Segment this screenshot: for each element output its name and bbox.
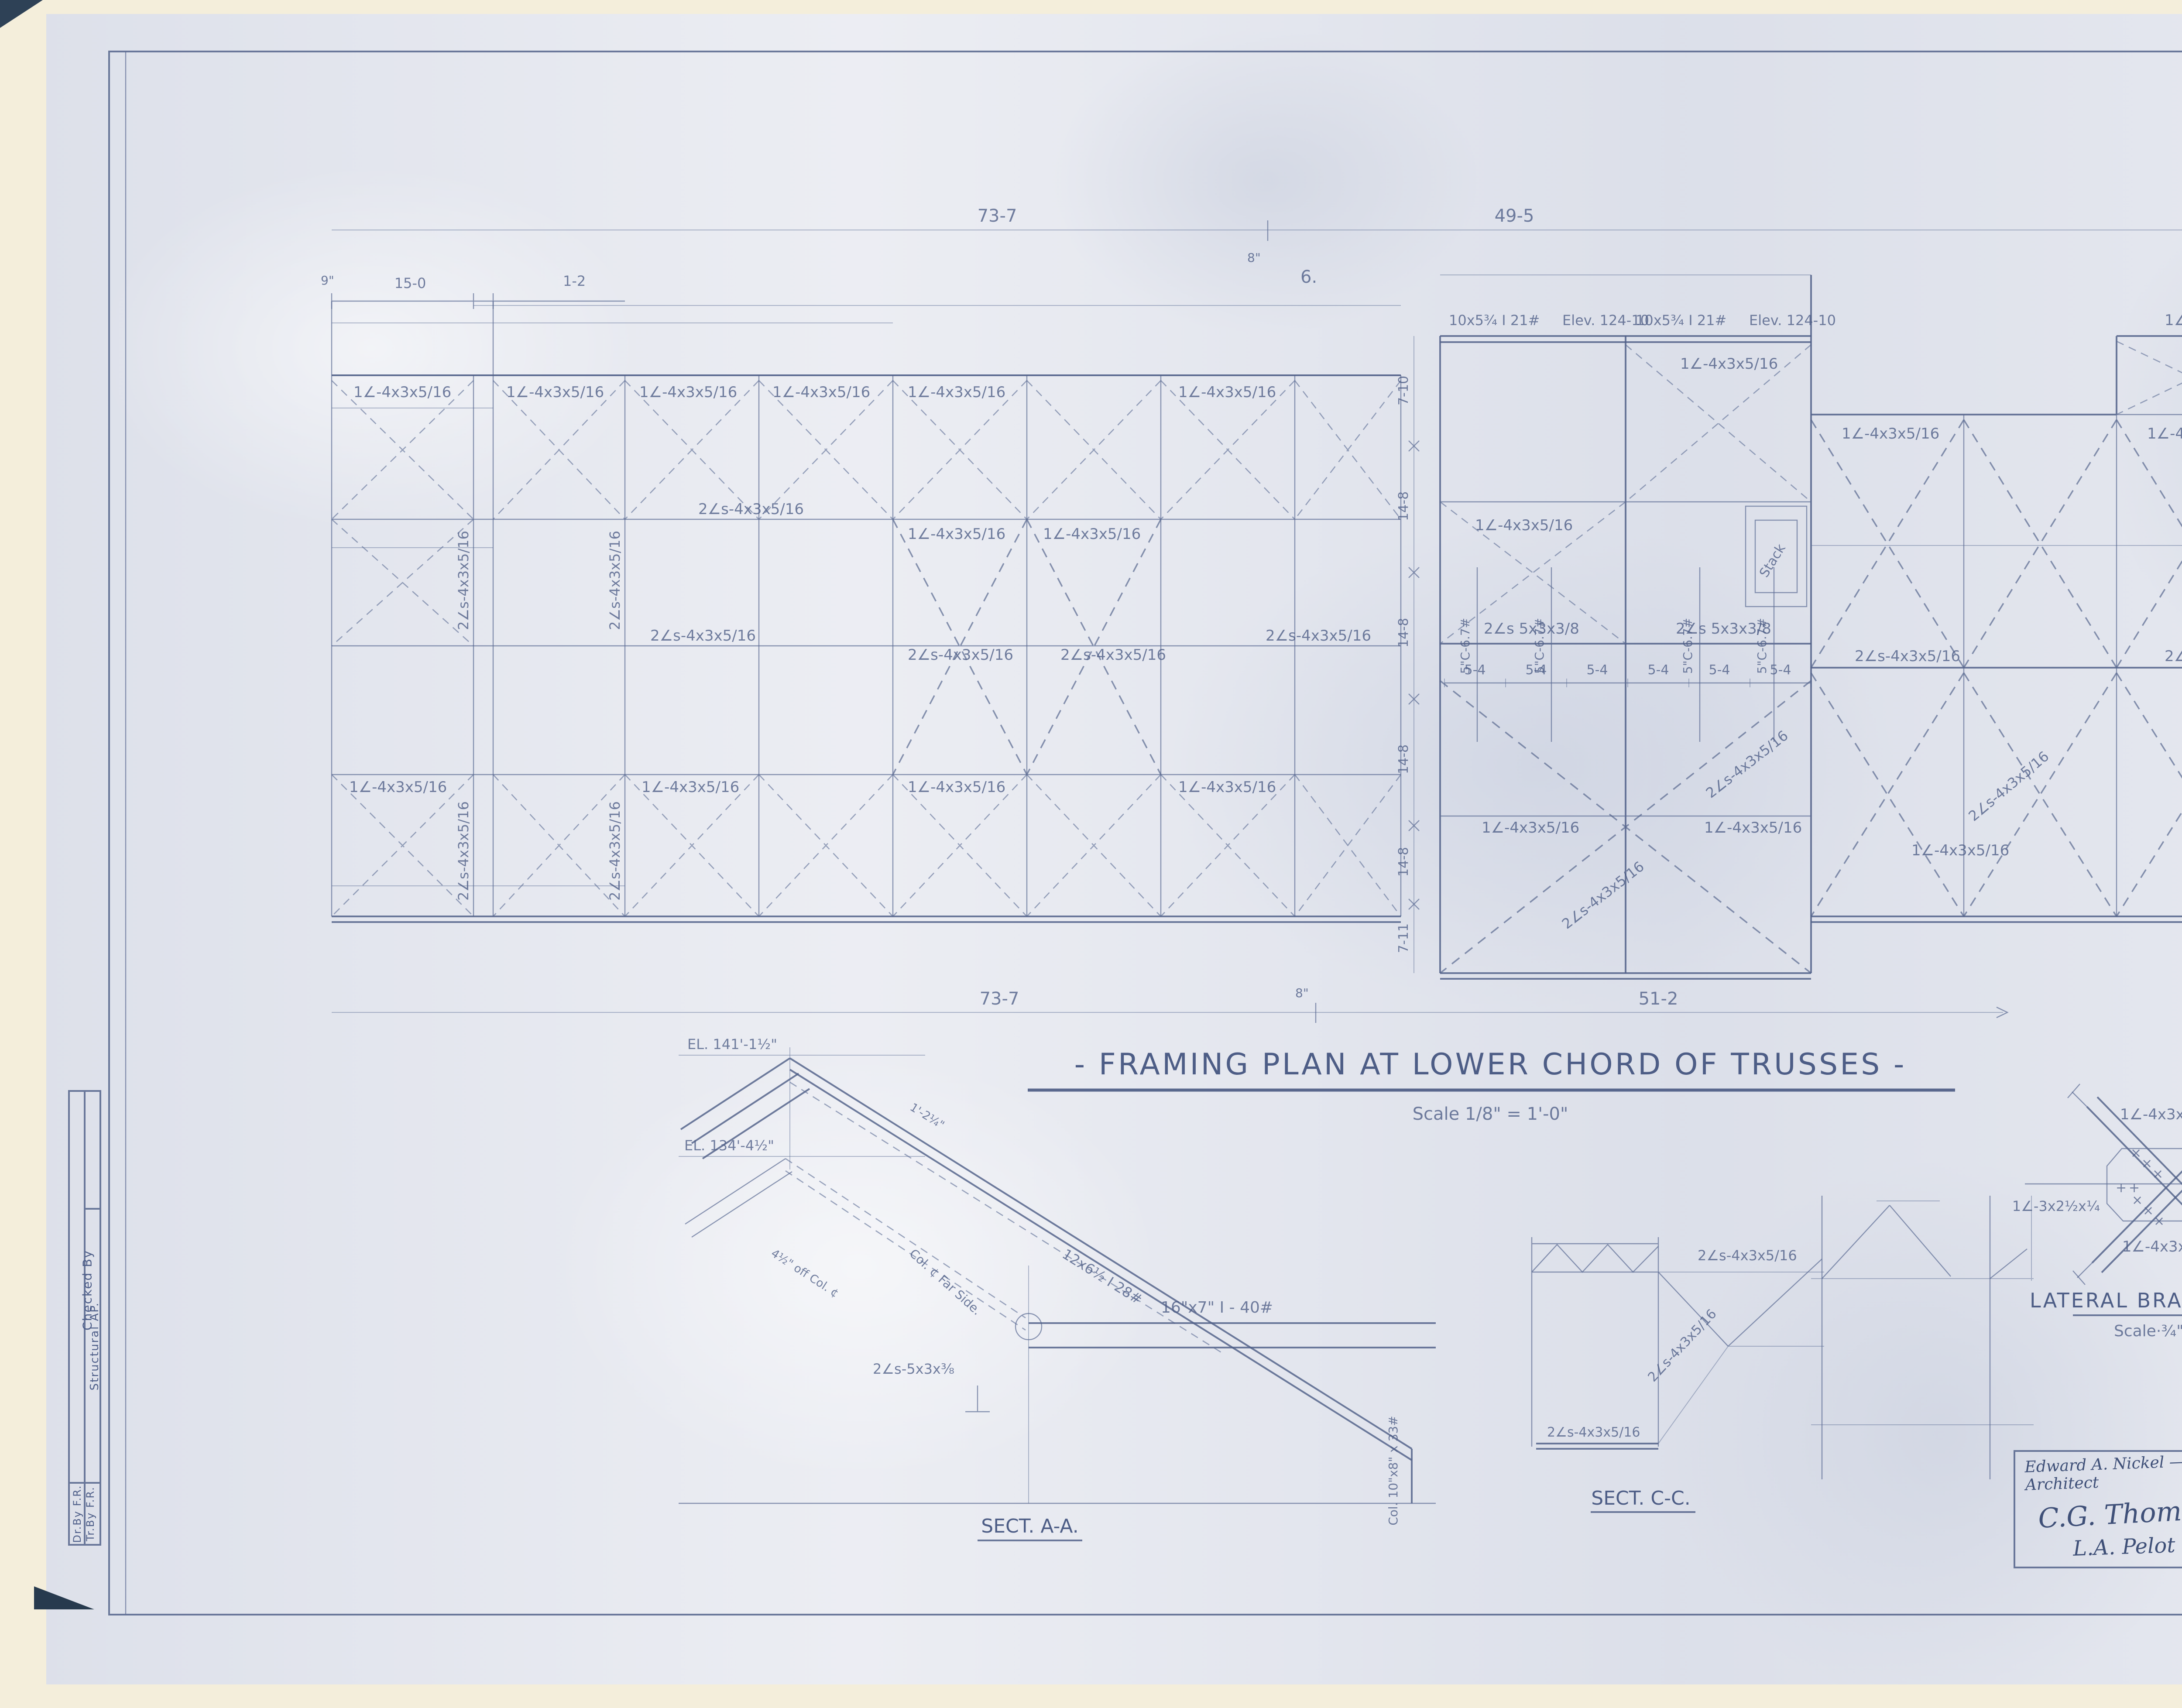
member-label: 2∠s-4x3x5/16 xyxy=(1060,646,1166,664)
svg-text:×: × xyxy=(2141,1156,2152,1171)
svg-text:×: × xyxy=(2154,1214,2165,1229)
member-label-vertical: 2∠s-4x3x5/16 xyxy=(607,531,623,630)
member-label: 1∠-4x3x5/16 xyxy=(772,384,870,401)
detail-title: LATERAL BRACING DETAIL xyxy=(2030,1289,2182,1312)
structural-label: Structural AP. xyxy=(88,1292,101,1401)
member-label: 1∠-4x3x5/16 xyxy=(2147,425,2182,442)
member-label: 1∠-4x3x5/16 xyxy=(1475,517,1573,534)
column-label: Col. 10"x8" x 33# xyxy=(1386,1416,1400,1526)
svg-text:×: × xyxy=(2143,1203,2154,1218)
member-label: 1∠-4x3x5/16 xyxy=(1842,425,1939,442)
member-label: 1∠-4x3x5/16 xyxy=(1178,779,1276,796)
member-label: 1∠-4x3x5/16 xyxy=(2120,1106,2182,1123)
signature-cell: Edward A. Nickel — For The Chief Archite… xyxy=(2025,1453,2182,1567)
dim-9in: 9" xyxy=(321,273,334,288)
dim-1-2: 1-2 xyxy=(563,273,586,289)
member-label: 1∠-4x3x5/16 xyxy=(1043,525,1141,543)
member-label: 2∠s-4x3x5/16 xyxy=(1266,627,1371,645)
member-label: 2∠s-4x3x5/16 xyxy=(1855,648,1960,665)
panel-dim: 5-4 xyxy=(1465,662,1486,678)
beam-label: 10x5¾ I 21# xyxy=(1636,312,1726,329)
member-label: 2∠s-4x3x5/16 xyxy=(908,646,1013,664)
plan-title-group: - FRAMING PLAN AT LOWER CHORD OF TRUSSES… xyxy=(1028,1047,1955,1124)
panel-dim: 5-4 xyxy=(1526,662,1547,678)
beam-elev-label: Elev. 124-10 xyxy=(1749,312,1836,329)
member-label: 1∠-4x3x5/16 xyxy=(639,384,737,401)
traced-by-initials: Tr.By F.R. xyxy=(84,1472,96,1555)
panel-dim: 5-4 xyxy=(1648,662,1669,678)
angles-label: 2∠s-5x3x⅜ xyxy=(873,1361,954,1377)
section-label: SECT. A-A. xyxy=(981,1515,1078,1537)
vertical-dim: 14-8 xyxy=(1396,491,1411,521)
plan-title: - FRAMING PLAN AT LOWER CHORD OF TRUSSES… xyxy=(1074,1047,1907,1082)
member-label: 2∠s-4x3x5/16 xyxy=(1698,1247,1797,1264)
panel-dim: 5-4 xyxy=(1709,662,1730,678)
section-c-c: 2∠s-4x3x5/16 2∠s-4x3x5/16 2∠s-4x3x5/16 S… xyxy=(1532,1196,2034,1512)
channel-label: 5"C-6.7# xyxy=(1755,618,1769,674)
member-label: 1∠-4x3x5/16 xyxy=(642,779,739,796)
member-label: 1∠-4x3x5/16 xyxy=(1178,384,1276,401)
handwritten-mark: 6. xyxy=(1300,267,1317,287)
member-label: 1∠-4x3x5/16 xyxy=(349,779,447,796)
svg-text:+: + xyxy=(2129,1180,2140,1196)
blueprint-scan: 9" 15-0 1-2 1∠-4x3x5/16 1∠-4x3x5/16 1∠-4… xyxy=(0,0,2182,1708)
beam-label: 10x5¾ I 21# xyxy=(1449,312,1540,329)
vertical-dim: 7-10 xyxy=(1396,376,1411,405)
member-label: 1∠-4x3x5/16 xyxy=(2165,312,2182,329)
framing-plan-central-block: 10x5¾ I 21# Elev. 124-10 10x5¾ I 21# Ele… xyxy=(1300,267,1836,979)
vertical-dim: 7-11 xyxy=(1396,923,1411,953)
stack-label: Stack xyxy=(1757,541,1789,580)
member-label: 2∠s-4x3x5/16 xyxy=(2165,648,2182,665)
member-label: 1∠-4x3x5/16 xyxy=(2122,1238,2182,1255)
member-label: 2∠s-4x3x5/16 xyxy=(1547,1425,1640,1440)
member-label: 2∠s 5x3x3/8 xyxy=(1484,620,1579,638)
signature-engineer: L.A. Pelot xyxy=(2072,1528,2182,1561)
member-label-diagonal: 2∠s-4x3x5/16 xyxy=(1703,727,1791,801)
member-label: 2∠s-4x3x5/16 xyxy=(698,501,804,518)
member-label: 2∠s-4x3x5/16 xyxy=(650,627,756,645)
section-label: SECT. C-C. xyxy=(1591,1487,1690,1509)
svg-text:+: + xyxy=(2116,1180,2127,1196)
signature-architect: Edward A. Nickel — For The Chief Archite… xyxy=(2024,1448,2182,1494)
dim-top-left: 73-7 xyxy=(978,206,1017,226)
svg-text:×: × xyxy=(2152,1166,2163,1182)
member-label: 1∠-4x3x5/16 xyxy=(1680,355,1778,373)
drawing-canvas: 9" 15-0 1-2 1∠-4x3x5/16 1∠-4x3x5/16 1∠-4… xyxy=(0,0,2182,1708)
framing-plan-left-block: 9" 15-0 1-2 1∠-4x3x5/16 1∠-4x3x5/16 1∠-4… xyxy=(321,273,1401,922)
member-label-vertical: 2∠s-4x3x5/16 xyxy=(607,801,623,901)
vertical-dim: 14-8 xyxy=(1396,618,1411,648)
dim-offset: 8" xyxy=(1295,986,1309,1000)
member-label: 1∠-4x3x5/16 xyxy=(1704,819,1802,837)
section-a-a: EL. 141'-1½" EL. 134'-4½" 1'-2¼" 12x6½ I… xyxy=(679,1036,1436,1540)
svg-text:×: × xyxy=(2131,1146,2141,1161)
dim-offset: 8" xyxy=(1247,250,1261,265)
member-label: 1∠-4x3x5/16 xyxy=(1911,842,2009,859)
member-label: 1∠-4x3x5/16 xyxy=(908,779,1005,796)
member-label: 1∠-4x3x5/16 xyxy=(908,384,1005,401)
drawn-by-initials: Dr.By F.R. xyxy=(71,1472,83,1555)
beam-label: 16"x7" I - 40# xyxy=(1161,1299,1273,1317)
titleblock-rules xyxy=(69,1091,2182,1567)
vertical-dim: 14-8 xyxy=(1396,744,1411,774)
dim-bottom-right: 51-2 xyxy=(1639,989,1678,1009)
member-label: 1∠-3x2½x¼ xyxy=(2012,1198,2100,1214)
member-label: 1∠-4x3x5/16 xyxy=(353,384,451,401)
vertical-dim: 14-8 xyxy=(1396,847,1411,877)
panel-dim: 5-4 xyxy=(1770,662,1791,678)
dim-15-0: 15-0 xyxy=(395,275,426,292)
member-label-diagonal: 2∠s-4x3x5/16 xyxy=(1965,748,2052,824)
member-label: 1∠-4x3x5/16 xyxy=(506,384,604,401)
detail-scale: Scale·¾" = 1'-0" xyxy=(2114,1322,2182,1340)
dim-top-right: 49-5 xyxy=(1495,206,1534,226)
member-label-vertical: 2∠s-4x3x5/16 xyxy=(455,801,472,901)
signature-superintendent: C.G. Thoman Supt xyxy=(2038,1488,2182,1534)
framing-plan-right-block: 1∠-4x3x5/16 1∠-4x3x5/16 1∠-4x3x5/16 2∠s-… xyxy=(1811,312,2182,977)
elevation-label: EL. 141'-1½" xyxy=(687,1036,777,1053)
member-label-vertical: 2∠s-4x3x5/16 xyxy=(455,531,472,630)
offset-note: 4½" off Col. ¢ xyxy=(769,1247,841,1300)
lateral-bracing-detail: ××× ××× ××× ×× ++ ++ 1∠-4x3x5/16 1∠-3x2½… xyxy=(2012,1077,2182,1340)
dim-bottom-left: 73-7 xyxy=(980,989,1019,1009)
small-dim: 1'-2¼" xyxy=(907,1101,946,1132)
channel-label: 5"C-6.7# xyxy=(1681,618,1695,674)
member-label: 1∠-4x3x5/16 xyxy=(908,525,1005,543)
panel-dim: 5-4 xyxy=(1587,662,1608,678)
member-label: 1∠-4x3x5/16 xyxy=(1482,819,1579,837)
plan-scale: Scale 1/8" = 1'-0" xyxy=(1413,1104,1568,1124)
